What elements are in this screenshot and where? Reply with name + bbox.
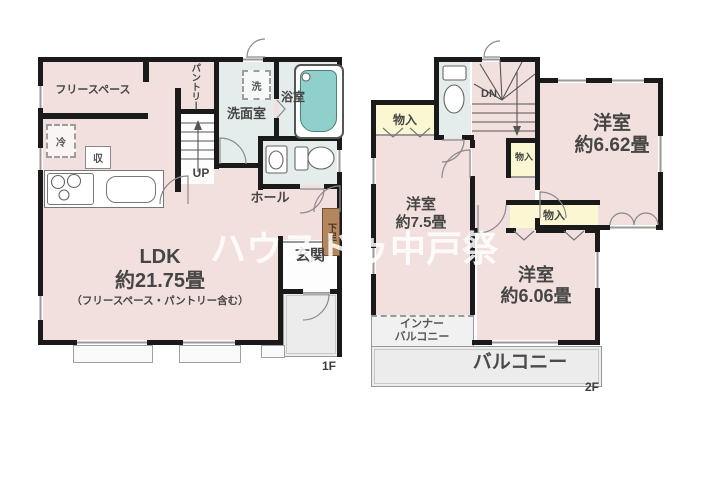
wall-segment	[595, 288, 600, 345]
window	[371, 248, 376, 274]
balcony-label: バルコニー	[440, 352, 600, 374]
wall-segment	[258, 136, 263, 190]
window	[612, 78, 644, 83]
closet-mid-label: 物入	[510, 152, 538, 163]
window	[337, 150, 342, 172]
room-s-title: 洋室	[477, 265, 595, 286]
free-space-label: フリースペース	[40, 84, 146, 97]
ldk-note: （フリースペース・パントリー含む）	[60, 295, 260, 307]
room-s-size: 約6.06畳	[477, 286, 595, 307]
refrigerator-label: 冷	[56, 134, 66, 149]
window	[38, 148, 43, 170]
ldk-label: LDK 約21.75畳 （フリースペース・パントリー含む）	[60, 246, 260, 308]
porch-step-line	[286, 295, 336, 354]
wall-segment	[586, 78, 612, 83]
stairs-dn-label: DN	[474, 88, 504, 101]
washroom-label: 洗面室	[219, 106, 274, 121]
wall-segment	[143, 57, 149, 82]
window	[243, 57, 263, 62]
washing-machine-box: 洗	[242, 70, 271, 100]
closet-nw-label: 物入	[376, 113, 434, 127]
window	[38, 296, 43, 320]
wall-segment	[658, 172, 663, 230]
wall-segment	[536, 228, 566, 233]
room-w-size: 約7.5畳	[372, 214, 470, 232]
wall-segment	[472, 340, 492, 345]
window-sill	[179, 345, 241, 363]
door-arc	[484, 41, 500, 57]
wall-segment	[38, 113, 148, 119]
wall-segment	[324, 184, 342, 189]
kitchen-sink	[106, 176, 156, 203]
room-ne-title: 洋室	[562, 113, 662, 135]
wall-segment	[540, 78, 558, 83]
wall-segment	[506, 228, 516, 233]
window	[595, 252, 600, 288]
wall-segment	[147, 340, 183, 345]
wall-segment	[214, 163, 263, 168]
wall-segment	[38, 340, 77, 345]
window	[371, 158, 376, 184]
window	[482, 57, 500, 62]
wall-segment	[283, 289, 303, 294]
wall-segment	[434, 135, 444, 140]
room-w-title: 洋室	[372, 196, 470, 214]
room-s-label: 洋室 約6.06畳	[477, 265, 595, 307]
room-ne-label: 洋室 約6.62畳	[562, 113, 662, 158]
closet-mid-line	[510, 176, 536, 178]
washing-machine-label: 洗	[252, 78, 262, 93]
toilet-2f-floor	[439, 62, 470, 138]
door-arc	[247, 39, 265, 57]
pantry-label: パントリー	[189, 61, 200, 113]
shoe-cabinet-label: 下足	[326, 223, 339, 241]
wall-segment	[330, 289, 342, 294]
window	[558, 78, 586, 83]
stairs-up-label: UP	[185, 166, 217, 180]
bathroom-label: 浴室	[270, 90, 316, 104]
wall-segment	[434, 57, 439, 140]
wall-segment	[506, 200, 600, 205]
floor-2-label: 2F	[585, 380, 599, 394]
room-ne-size: 約6.62畳	[562, 135, 662, 157]
wall-segment	[371, 100, 439, 105]
wall-segment	[470, 140, 475, 148]
room-w-label: 洋室 約7.5畳	[372, 196, 470, 231]
wall-segment	[470, 176, 475, 315]
porch	[283, 292, 339, 357]
closet-s-label: 物入	[510, 210, 598, 223]
wall-segment	[175, 88, 181, 192]
closet-nw-line	[376, 134, 434, 136]
stove	[47, 173, 94, 205]
storage-label: 収	[93, 150, 103, 165]
wall-segment	[558, 340, 600, 345]
window	[610, 225, 656, 230]
hall-label: ホール	[240, 190, 300, 205]
wall-segment	[656, 225, 663, 230]
floorplan-canvas: 冷 収 洗 下足 フリースペース パントリー 洗面室 浴室 ホール 玄関 UP …	[0, 0, 717, 478]
wall-segment	[595, 228, 600, 252]
ldk-title: LDK	[60, 246, 260, 270]
window	[77, 340, 147, 345]
floor-1-label: 1F	[322, 359, 336, 373]
toilet-1f-floor	[263, 141, 337, 185]
storage-box: 収	[85, 146, 111, 169]
wall-segment	[506, 138, 540, 143]
wall-segment	[235, 340, 283, 345]
window-sill	[73, 345, 153, 363]
entrance-label: 玄関	[283, 247, 337, 265]
refrigerator-box: 冷	[46, 124, 76, 158]
ldk-size: 約21.75畳	[60, 270, 260, 294]
porch-step	[261, 345, 285, 358]
wall-segment	[258, 184, 300, 189]
window	[183, 340, 235, 345]
wall-segment	[535, 83, 540, 190]
wall-segment	[472, 228, 478, 233]
window	[492, 340, 558, 345]
inner-balcony-label: インナー バルコニー	[378, 318, 466, 344]
